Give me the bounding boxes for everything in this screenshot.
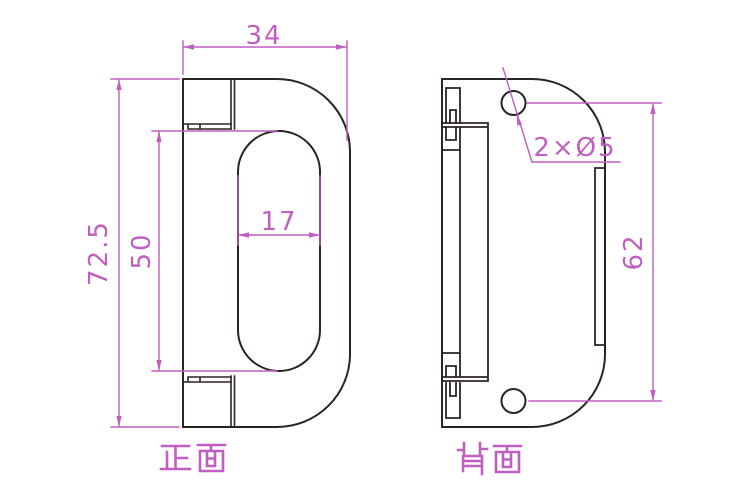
arrow-34-right xyxy=(336,44,347,49)
back-outline xyxy=(442,79,605,427)
dim-50-lines xyxy=(152,131,277,371)
back-bottom-boss xyxy=(446,366,460,418)
technical-drawing: 34 72.5 50 17 2×Ø5 62 正面 背面 xyxy=(0,0,750,504)
dimension-arrows xyxy=(116,44,655,427)
dimension-lines xyxy=(111,41,661,427)
back-channel-lines xyxy=(442,123,488,381)
dimension-texts: 34 72.5 50 17 2×Ø5 62 xyxy=(84,21,649,286)
dim-text-17: 17 xyxy=(260,207,297,237)
arrow-17-right xyxy=(309,232,320,237)
back-view-label-text: 背面 xyxy=(459,443,521,479)
front-top-foot-step xyxy=(183,124,231,129)
front-view-label-text: 正面 xyxy=(164,442,226,478)
arrow-62-top xyxy=(650,103,655,114)
front-bottom-foot-step xyxy=(183,377,231,382)
dim-text-72-5: 72.5 xyxy=(84,220,114,286)
cad-drawing-canvas: 34 72.5 50 17 2×Ø5 62 正面 背面 xyxy=(0,0,750,504)
back-hole-bottom xyxy=(502,389,526,413)
arrow-72-top xyxy=(116,79,121,90)
dim-text-2x5: 2×Ø5 xyxy=(533,133,616,163)
dim-34-lines xyxy=(183,41,347,140)
back-rib xyxy=(595,168,605,345)
dim-text-62: 62 xyxy=(619,233,649,270)
front-grip-slot xyxy=(238,131,320,371)
arrow-62-bottom xyxy=(650,390,655,401)
arrow-34-left xyxy=(183,44,194,49)
arrow-72-bottom xyxy=(116,416,121,427)
back-top-boss xyxy=(446,88,460,140)
arrow-leader-hole xyxy=(517,115,523,126)
dim-text-50: 50 xyxy=(127,232,157,269)
view-labels: 正面 背面 xyxy=(161,442,521,479)
arrow-50-bottom xyxy=(156,360,161,371)
arrow-50-top xyxy=(156,131,161,142)
arrow-17-left xyxy=(238,232,249,237)
dim-text-34: 34 xyxy=(245,21,282,51)
